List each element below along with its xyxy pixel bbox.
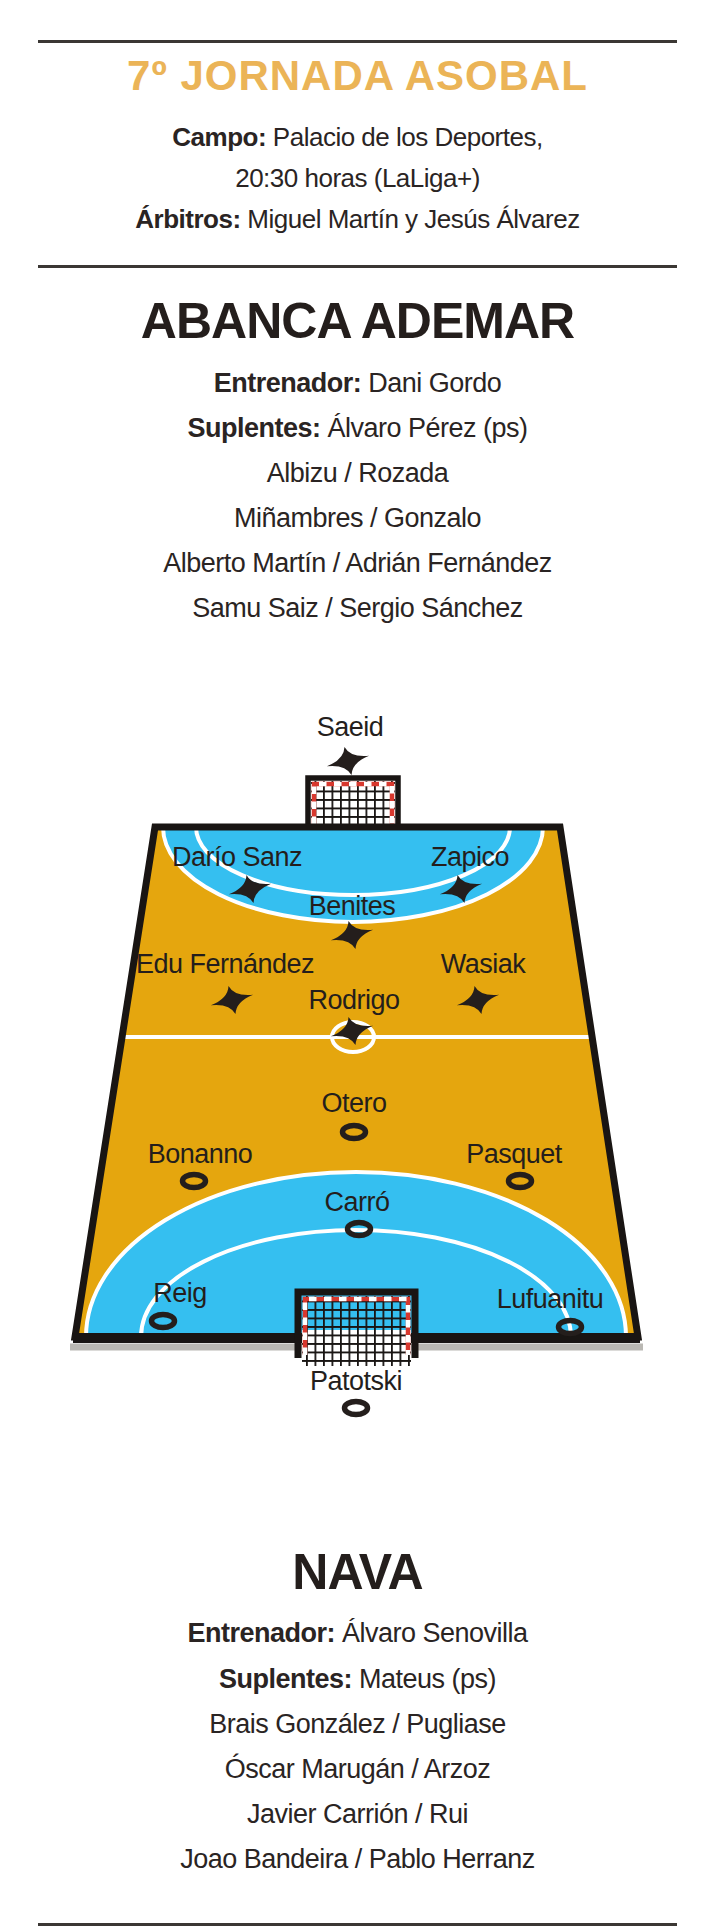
court-diagram: Saeid Darío Sanz Zapico Benites Edu Fern… <box>0 690 715 1450</box>
page-title: 7º JORNADA ASOBAL <box>0 52 715 100</box>
bottom-divider <box>38 1923 677 1926</box>
venue-label: Campo: <box>172 122 266 152</box>
player-label: Bonanno <box>148 1139 253 1169</box>
away-coach-label: Entrenador: <box>187 1618 335 1648</box>
top-divider <box>38 40 677 43</box>
player-label: Pasquet <box>466 1139 563 1169</box>
away-sub: Mateus (ps) <box>359 1664 496 1694</box>
player-label: Benites <box>309 891 396 921</box>
home-subs-line: Suplentes: Álvaro Pérez (ps) <box>0 413 715 444</box>
referees-line: Árbitros: Miguel Martín y Jesús Álvarez <box>0 204 715 235</box>
player-label: Lufuanitu <box>497 1284 604 1314</box>
time-line: 20:30 horas (LaLiga+) <box>0 163 715 194</box>
home-coach-value: Dani Gordo <box>368 368 501 398</box>
player-label: Saeid <box>317 712 384 742</box>
venue-line: Campo: Palacio de los Deportes, <box>0 122 715 153</box>
home-sub: Samu Saiz / Sergio Sánchez <box>0 593 715 624</box>
player-label: Zapico <box>431 842 509 872</box>
infographic-page: 7º JORNADA ASOBAL Campo: Palacio de los … <box>0 0 715 1932</box>
away-team-name: NAVA <box>0 1543 715 1601</box>
player-label: Wasiak <box>441 949 527 979</box>
venue-value: Palacio de los Deportes, <box>273 122 543 152</box>
referees-value: Miguel Martín y Jesús Álvarez <box>247 204 579 234</box>
away-sub: Óscar Marugán / Arzoz <box>0 1754 715 1785</box>
away-subs-label: Suplentes: <box>219 1664 352 1694</box>
away-coach-line: Entrenador: Álvaro Senovilla <box>0 1618 715 1649</box>
player-label: Darío Sanz <box>172 842 302 872</box>
top-goal <box>308 778 398 827</box>
home-sub: Álvaro Pérez (ps) <box>327 413 527 443</box>
player-label: Rodrigo <box>308 985 399 1015</box>
player-label: Patotski <box>310 1366 402 1396</box>
away-sub: Javier Carrión / Rui <box>0 1799 715 1830</box>
home-subs-label: Suplentes: <box>187 413 320 443</box>
home-coach-label: Entrenador: <box>214 368 362 398</box>
bottom-goal <box>298 1292 415 1367</box>
player-label: Reig <box>153 1278 207 1308</box>
player-marker-x <box>323 742 372 781</box>
player-label: Otero <box>321 1088 386 1118</box>
home-sub: Albizu / Rozada <box>0 458 715 489</box>
away-sub: Brais González / Pugliase <box>0 1709 715 1740</box>
home-sub: Miñambres / Gonzalo <box>0 503 715 534</box>
away-coach-value: Álvaro Senovilla <box>342 1618 528 1648</box>
away-subs-line: Suplentes: Mateus (ps) <box>0 1664 715 1695</box>
home-coach-line: Entrenador: Dani Gordo <box>0 368 715 399</box>
home-sub: Alberto Martín / Adrián Fernández <box>0 548 715 579</box>
player-label: Carró <box>324 1187 389 1217</box>
referees-label: Árbitros: <box>135 204 240 234</box>
home-team-name: ABANCA ADEMAR <box>0 292 715 350</box>
player-label: Edu Fernández <box>136 949 314 979</box>
away-sub: Joao Bandeira / Pablo Herranz <box>0 1844 715 1875</box>
player-marker-o <box>345 1402 368 1415</box>
header-divider <box>38 265 677 268</box>
